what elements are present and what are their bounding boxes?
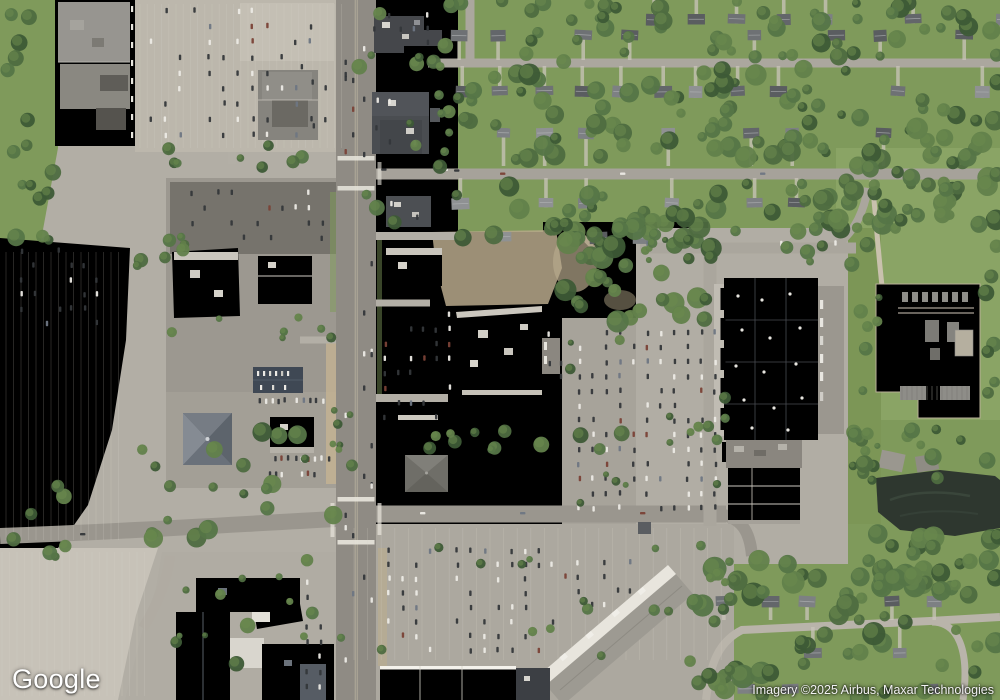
google-logo[interactable]: Google: [12, 664, 101, 695]
main-arterial-road: [336, 0, 376, 700]
mall-anchor-store: [55, 0, 135, 146]
pad-building-hip-roof: [405, 455, 448, 492]
south-shopping-plaza: [380, 666, 550, 700]
satellite-map[interactable]: Google Imagery ©2025 Airbus, Maxar Techn…: [0, 0, 1000, 700]
bank-building: [183, 413, 232, 465]
map-attribution: Imagery ©2025 Airbus, Maxar Technologies: [752, 683, 994, 697]
carport-canopy: [253, 367, 303, 393]
satellite-imagery: [0, 0, 1000, 700]
retail-white-2: [258, 256, 312, 304]
plaza-building-north: [258, 70, 318, 140]
retail-white-4: [386, 248, 442, 286]
garden-center-building: [728, 468, 800, 524]
kiosk-building: [638, 522, 651, 534]
retail-white-1: [172, 248, 240, 318]
